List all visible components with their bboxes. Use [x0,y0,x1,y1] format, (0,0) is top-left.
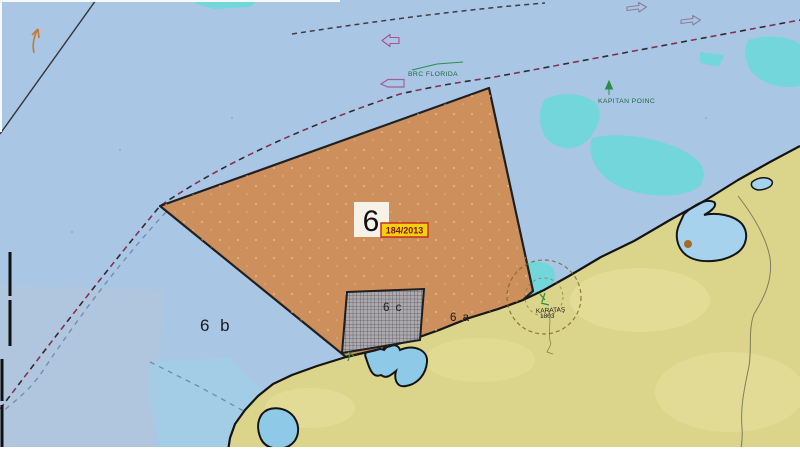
zone-6a-label: 6 a [450,312,471,324]
vessel-label: BRC FLORIDA [408,71,458,78]
zone-6c-label: 6 c [383,302,403,314]
regulation-badge-text: 184/2013 [386,226,424,236]
lagoon-small-south [258,408,298,448]
sea-shade-west [0,285,165,451]
zone-6b-label: 6 b [200,316,233,335]
town-dot [684,240,692,248]
zone-6-number: 6 [363,205,380,238]
svg-text:1803: 1803 [540,313,555,320]
nautical-chart-viewport[interactable]: KARATAŞ 1803 BRC FLORIDA KAPITAN POINC 6… [0,0,800,451]
regulation-badge: 184/2013 [381,223,428,237]
chart-canvas: KARATAŞ 1803 BRC FLORIDA KAPITAN POINC 6… [0,0,800,451]
vessel-label: KAPITAN POINC [598,98,655,105]
